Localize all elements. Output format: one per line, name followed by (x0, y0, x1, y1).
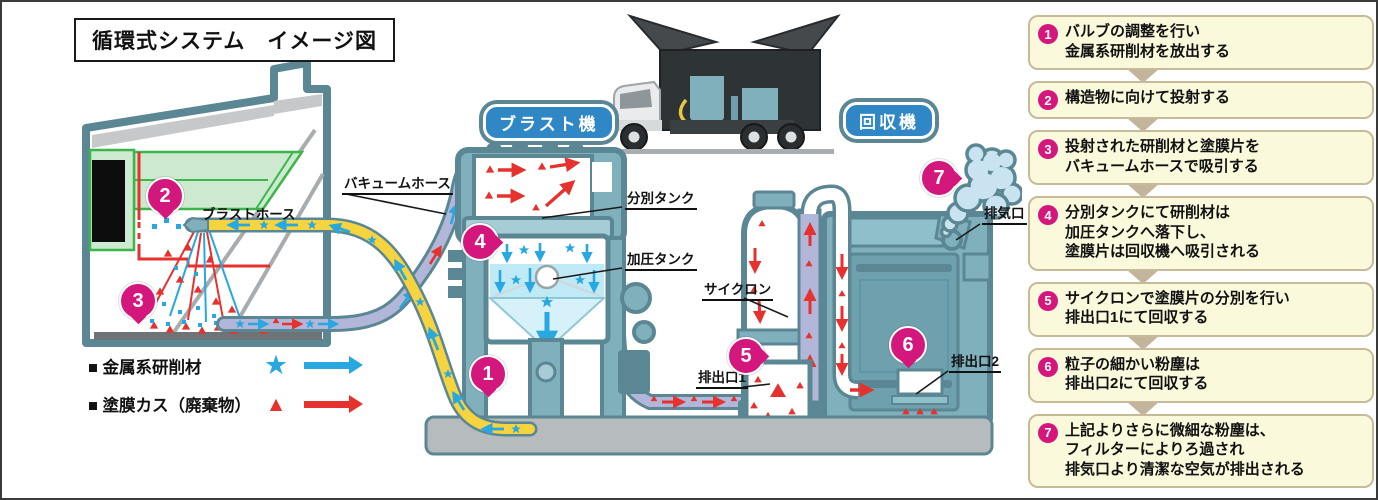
step-item-2: 2 構造物に向けて投射する (1028, 81, 1374, 119)
step-item-7: 7 上記よりさらに微細な粉塵は、 フィルターによりろ過され 排気口より清潔な空気… (1028, 414, 1374, 489)
step-text: 構造物に向けて投射する (1065, 88, 1230, 108)
blast-hose-label: ブラストホース (200, 207, 298, 224)
step-item-1: 1 バルブの調整を行い 金属系研削材を放出する (1028, 15, 1374, 70)
vacuum-hose-label: バキュームホース (342, 176, 453, 195)
step-text: 分別タンクにて研削材は 加圧タンクへ落下し、 塗膜片は回収機へ吸引される (1065, 203, 1260, 262)
step-number: 7 (1038, 423, 1058, 443)
circulation-system-diagram: 循環式システム イメージ図 ブラスト機 回収機 バキュームホース ブラストホース… (0, 0, 1378, 500)
step-number: 4 (1038, 205, 1058, 225)
exhaust-label: 排気口 (982, 206, 1027, 225)
separation-tank-label: 分別タンク (625, 191, 697, 210)
legend-abrasive-label: ■ 金属系研削材 (88, 354, 256, 378)
step-text: 粒子の細かい粉塵は 排出口2にて回収する (1065, 355, 1208, 394)
truck (602, 16, 838, 154)
legend-item-abrasive: ■ 金属系研削材 ★ (88, 352, 350, 379)
step-number: 6 (1038, 357, 1058, 377)
legend-waste-label: ■ 塗膜カス（廃棄物） (88, 392, 256, 416)
blast-machine-label: ブラスト機 (483, 104, 615, 141)
recovery-machine-label: 回収機 (843, 102, 935, 139)
step-badge-4: 4 (461, 223, 499, 261)
step-text: 投射された研削材と塗膜片を バキュームホースで吸引する (1065, 137, 1260, 176)
step-item-3: 3 投射された研削材と塗膜片を バキュームホースで吸引する (1028, 130, 1374, 185)
system-illustration (2, 2, 1022, 500)
recovery-machine (738, 145, 1022, 424)
step-number: 3 (1038, 139, 1058, 159)
outlet2-label: 排出口2 (949, 354, 1001, 373)
process-steps: 1 バルブの調整を行い 金属系研削材を放出する 2 構造物に向けて投射する 3 … (1028, 15, 1374, 488)
step-number: 5 (1038, 291, 1058, 311)
step-badge-5: 5 (727, 337, 765, 375)
blue-arrow-icon (304, 362, 350, 369)
step-badge-1: 1 (469, 355, 507, 393)
step-badge-2: 2 (146, 177, 184, 215)
pressure-tank-label: 加圧タンク (625, 252, 697, 271)
triangle-icon: ▲ (256, 394, 296, 415)
step-number: 2 (1038, 90, 1058, 110)
step-badge-6: 6 (889, 326, 927, 364)
star-icon: ★ (256, 352, 296, 379)
step-item-4: 4 分別タンクにて研削材は 加圧タンクへ落下し、 塗膜片は回収機へ吸引される (1028, 196, 1374, 271)
step-badge-3: 3 (119, 282, 157, 320)
cyclone-label: サイクロン (702, 282, 773, 301)
step-item-5: 5 サイクロンで塗膜片の分別を行い 排出口1にて回収する (1028, 282, 1374, 337)
step-text: バルブの調整を行い 金属系研削材を放出する (1065, 22, 1230, 61)
red-arrow-icon (304, 401, 350, 408)
step-badge-7: 7 (920, 159, 958, 197)
step-item-6: 6 粒子の細かい粉塵は 排出口2にて回収する (1028, 348, 1374, 403)
step-text: 上記よりさらに微細な粉塵は、 フィルターによりろ過され 排気口より清潔な空気が排… (1065, 421, 1305, 480)
legend: ■ 金属系研削材 ★ ■ 塗膜カス（廃棄物） ▲ (88, 352, 350, 416)
legend-item-waste: ■ 塗膜カス（廃棄物） ▲ (88, 392, 350, 416)
step-text: サイクロンで塗膜片の分別を行い 排出口1にて回収する (1065, 289, 1290, 328)
step-number: 1 (1038, 24, 1058, 44)
page-title: 循環式システム イメージ図 (74, 18, 395, 62)
